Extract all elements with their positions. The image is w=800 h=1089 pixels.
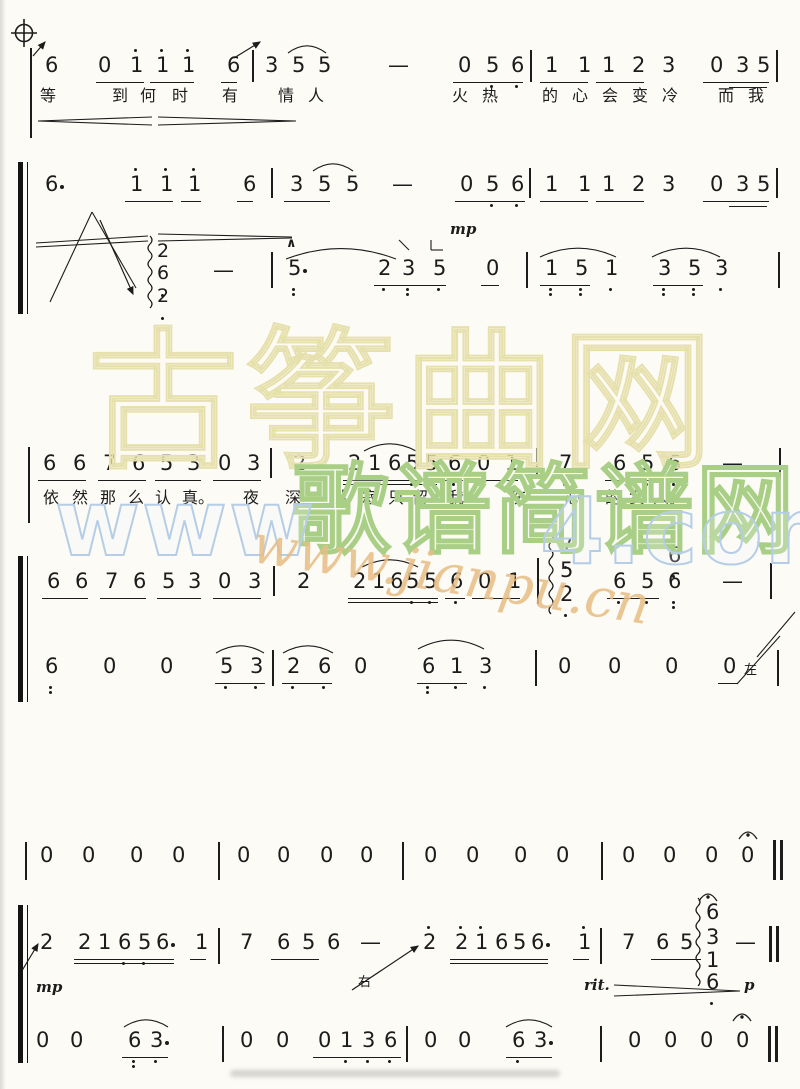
glissando-arrow: [33, 42, 45, 56]
note-glyph: 0: [276, 1030, 289, 1051]
slur-arc: [364, 444, 416, 451]
note-glyph: 1: [545, 55, 558, 76]
note-glyph: 0: [477, 453, 490, 474]
note-glyph: 0: [460, 174, 473, 195]
octave-dot-below: [254, 686, 257, 689]
octave-dot-below: [672, 601, 675, 604]
note-glyph: 3: [187, 453, 200, 474]
lyric-syllable: 时: [172, 88, 188, 104]
note-glyph: 6: [512, 1030, 525, 1051]
note-glyph: 5: [318, 55, 331, 76]
barline: [271, 168, 273, 198]
octave-dot-below: [406, 293, 409, 296]
note-glyph: 1: [188, 174, 201, 195]
note-glyph: 2: [297, 571, 310, 592]
barline: [218, 928, 220, 964]
barline: [273, 566, 275, 596]
octave-dot-below: [564, 614, 567, 617]
beam-line: [651, 959, 701, 960]
note-glyph: 5: [292, 55, 305, 76]
note-glyph: 6: [156, 932, 169, 953]
beam-line: [348, 602, 438, 603]
final-barline: [768, 1026, 771, 1062]
lyric-syllable: 热: [482, 88, 498, 104]
octave-dot-below: [672, 606, 675, 609]
note-glyph: 6: [157, 264, 169, 283]
octave-dot-below: [291, 686, 294, 689]
notation-line: [399, 240, 409, 250]
note-glyph: 0: [70, 1030, 83, 1051]
lyric-syllable: 依: [43, 490, 59, 506]
note-glyph: 5: [406, 571, 419, 592]
note-glyph: 6: [706, 972, 719, 993]
barline: [526, 252, 528, 288]
lyric-syllable: 冷: [662, 88, 678, 104]
beam-line: [506, 1057, 552, 1058]
barline: [28, 447, 30, 523]
slur-arc: [283, 646, 333, 653]
note-glyph: —: [213, 260, 234, 281]
dynamic-marking: p: [744, 978, 755, 993]
beam-line: [282, 683, 332, 684]
octave-dot-above: [192, 168, 195, 171]
beam-line: [38, 480, 86, 481]
final-barline: [776, 926, 779, 962]
note-glyph: 6: [118, 932, 131, 953]
barline: [601, 842, 603, 880]
lyric-syllable: 寂: [362, 490, 378, 506]
octave-dot-above: [479, 926, 482, 929]
lyric-syllable: 火: [452, 88, 468, 104]
note-glyph: 6: [422, 656, 435, 677]
note-glyph: 1: [602, 174, 615, 195]
octave-dot-below: [672, 483, 675, 486]
note-glyph: 1: [368, 453, 381, 474]
octave-dot-above: [582, 926, 585, 929]
octave-dot-below: [292, 288, 295, 291]
lyric-syllable: 我: [748, 88, 764, 104]
note-glyph: 1: [160, 174, 173, 195]
augmentation-dot: [303, 269, 307, 273]
beam-line: [122, 1057, 168, 1058]
note-glyph: 1: [602, 55, 615, 76]
note-glyph: 5: [680, 932, 693, 953]
notation-line: [38, 121, 152, 125]
final-barline: [769, 926, 772, 962]
note-glyph: 6: [656, 932, 669, 953]
note-glyph: 0: [558, 656, 571, 677]
note-glyph: 1: [372, 571, 385, 592]
note-glyph: 0: [514, 845, 527, 866]
note-glyph: 7: [103, 453, 116, 474]
octave-dot-below: [437, 288, 440, 291]
note-glyph: 5: [757, 174, 770, 195]
note-glyph: 5: [641, 571, 654, 592]
note-glyph: 2: [378, 258, 391, 279]
note-glyph: 0: [240, 1030, 253, 1051]
barline: [779, 448, 781, 478]
beam-line: [455, 201, 525, 202]
beam-line: [150, 82, 194, 83]
note-glyph: 6: [613, 453, 626, 474]
beam-line: [100, 598, 146, 599]
note-glyph: 1: [578, 55, 591, 76]
note-glyph: 1: [98, 932, 111, 953]
note-glyph: 1: [545, 258, 558, 279]
score-page: 601116355—0561112303561116355—0561112303…: [0, 0, 800, 1089]
beam-line: [443, 480, 463, 481]
beam-line: [213, 598, 261, 599]
barline: [529, 168, 531, 198]
octave-dot-below: [617, 483, 620, 486]
beam-line: [540, 82, 588, 83]
barline: [25, 842, 27, 880]
accent-mark: ∧: [286, 237, 297, 250]
lyric-syllable: 人。: [653, 490, 685, 506]
note-glyph: 6: [531, 932, 544, 953]
octave-dot-below: [645, 601, 648, 604]
beam-line: [42, 598, 88, 599]
lyric-syllable: 深: [285, 490, 301, 506]
note-glyph: 0: [130, 845, 143, 866]
fermata-dot: [706, 895, 709, 898]
lyric-syllable: 心: [565, 490, 581, 506]
beam-line: [573, 959, 589, 960]
note-glyph: 2: [423, 932, 436, 953]
notation-line: [36, 236, 148, 243]
beam-line: [343, 480, 437, 481]
note-glyph: 6: [327, 932, 340, 953]
note-glyph: 6: [613, 571, 626, 592]
note-glyph: 0: [458, 1030, 471, 1051]
note-glyph: 0: [741, 845, 754, 866]
beam-line: [215, 683, 265, 684]
beam-line: [374, 285, 446, 286]
augmentation-dot: [165, 1041, 169, 1045]
barline: [530, 50, 532, 82]
octave-dot-below: [549, 293, 552, 296]
beam-line: [74, 963, 174, 964]
barline: [600, 928, 602, 964]
note-glyph: 3: [662, 174, 675, 195]
octave-dot-above: [427, 926, 430, 929]
barline: [270, 448, 272, 478]
note-glyph: 0: [160, 656, 173, 677]
barline: [252, 50, 254, 82]
lyric-syllable: 而: [718, 88, 734, 104]
note-glyph: 0: [360, 845, 373, 866]
lyric-syllable: 心: [572, 88, 588, 104]
note-glyph: 3: [247, 453, 260, 474]
lyric-syllable: 伤: [510, 490, 526, 506]
notation-line: [614, 985, 740, 991]
octave-dot-below: [161, 317, 164, 320]
note-glyph: 0: [700, 1030, 713, 1051]
notation-line: [757, 612, 795, 657]
note-glyph: 0: [663, 845, 676, 866]
notation-line: [92, 212, 136, 288]
lyric-syllable: 到: [112, 88, 128, 104]
notation-line: [614, 991, 740, 996]
note-glyph: 5: [138, 932, 151, 953]
system-bracket: [18, 905, 28, 1063]
octave-dot-below: [154, 1060, 157, 1063]
note-glyph: 3: [250, 656, 263, 677]
lyric-syllable: 何: [140, 88, 156, 104]
beam-line: [155, 480, 201, 481]
note-glyph: 6: [384, 1030, 397, 1051]
octave-dot-above: [134, 49, 137, 52]
note-glyph: 1: [578, 174, 591, 195]
coda-icon: [16, 25, 33, 42]
note-glyph: 6: [45, 656, 58, 677]
lyric-syllable: 会: [602, 88, 618, 104]
note-glyph: —: [388, 55, 409, 76]
beam-line: [98, 480, 146, 481]
note-glyph: 1: [195, 932, 208, 953]
note-glyph: 6: [132, 453, 145, 474]
octave-dot-below: [483, 686, 486, 689]
note-glyph: 0: [36, 1030, 49, 1051]
octave-dot-below: [609, 288, 612, 291]
beam-line: [450, 963, 548, 964]
note-glyph: 3: [662, 55, 675, 76]
note-glyph: 0: [277, 845, 290, 866]
note-glyph: 7: [622, 932, 635, 953]
octave-dot-below: [692, 293, 695, 296]
octave-dot-below: [710, 1002, 713, 1005]
note-glyph: 0: [710, 55, 723, 76]
note-glyph: 2: [632, 55, 645, 76]
note-glyph: —: [392, 174, 413, 195]
note-glyph: 0: [466, 845, 479, 866]
barline: [272, 650, 274, 686]
note-glyph: —: [360, 932, 381, 953]
barline: [218, 842, 220, 880]
octave-dot-below: [406, 288, 409, 291]
lyric-syllable: 人: [308, 88, 324, 104]
octave-dot-below: [344, 1060, 347, 1063]
note-glyph: 6: [511, 55, 524, 76]
beam-line: [453, 82, 523, 83]
note-glyph: 0: [486, 258, 499, 279]
notation-line: [158, 238, 292, 241]
note-glyph: 1: [706, 950, 719, 971]
note-glyph: 5: [160, 453, 173, 474]
note-glyph: 0: [218, 453, 231, 474]
note-glyph: 2: [455, 932, 468, 953]
note-glyph: 0: [710, 174, 723, 195]
slur-arc: [124, 1020, 168, 1027]
note-glyph: 5: [288, 258, 301, 279]
note-glyph: 0: [98, 55, 111, 76]
note-glyph: 0: [458, 55, 471, 76]
beam-line: [74, 959, 174, 960]
note-glyph: 1: [130, 174, 143, 195]
note-glyph: 0: [424, 1030, 437, 1051]
note-glyph: 3: [736, 55, 749, 76]
beam-line: [284, 201, 330, 202]
barline: [30, 48, 32, 138]
octave-dot-below: [132, 1065, 135, 1068]
note-glyph: —: [722, 571, 743, 592]
octave-dot-below: [454, 686, 457, 689]
note-glyph: 0: [424, 845, 437, 866]
lyric-syllable: 认: [155, 490, 171, 506]
note-glyph: 7: [559, 453, 572, 474]
note-glyph: 3: [290, 174, 303, 195]
note-glyph: 6: [133, 571, 146, 592]
octave-dot-below: [454, 601, 457, 604]
note-glyph: 1: [475, 932, 488, 953]
note-glyph: 3: [479, 656, 492, 677]
octave-dot-below: [49, 686, 52, 689]
octave-dot-below: [452, 483, 455, 486]
note-glyph: 5: [560, 560, 573, 581]
note-glyph: 5: [425, 453, 438, 474]
note-glyph: 0: [628, 1030, 641, 1051]
beam-line: [450, 959, 548, 960]
note-glyph: 3: [265, 55, 278, 76]
dynamic-marking: mp: [36, 980, 62, 995]
lyric-syllable: 夜: [243, 490, 259, 506]
beam-line: [213, 480, 261, 481]
octave-dot-above: [160, 49, 163, 52]
note-glyph: 0: [320, 845, 333, 866]
note-glyph: 6: [450, 571, 463, 592]
note-glyph: 3: [534, 1030, 547, 1051]
beam-line: [157, 598, 201, 599]
note-glyph: 6: [388, 453, 401, 474]
note-glyph: 0: [354, 656, 367, 677]
note-glyph: —: [735, 932, 756, 953]
octave-dot-below: [719, 288, 722, 291]
note-glyph: 0: [664, 1030, 677, 1051]
beam-line: [445, 598, 465, 599]
note-glyph: 3: [736, 174, 749, 195]
note-glyph: 0: [218, 571, 231, 592]
barline: [271, 252, 273, 288]
note-glyph: 5: [575, 258, 588, 279]
beam-line: [472, 598, 520, 599]
beam-line: [221, 82, 237, 83]
system-bracket: [18, 162, 28, 314]
hand-technique-label: 左: [744, 664, 757, 677]
slur-arc: [506, 1020, 552, 1027]
note-glyph: 6: [706, 902, 719, 923]
octave-dot-below: [662, 288, 665, 291]
note-glyph: 0: [172, 845, 185, 866]
arpeggio-wavy-line: [696, 898, 700, 986]
note-glyph: 5: [220, 656, 233, 677]
fermata-icon: [739, 832, 757, 839]
lyric-syllable: 有: [222, 88, 238, 104]
note-glyph: 5: [318, 174, 331, 195]
octave-dot-below: [662, 293, 665, 296]
note-glyph: 5: [433, 258, 446, 279]
note-glyph: 6: [448, 453, 461, 474]
note-glyph: 2: [287, 656, 300, 677]
final-barline: [773, 840, 776, 880]
octave-dot-below: [382, 288, 385, 291]
octave-dot-below: [426, 686, 429, 689]
watermark-text: 歌谱简谱网: [292, 462, 797, 560]
note-glyph: 0: [622, 845, 635, 866]
beam-line: [703, 82, 769, 83]
note-glyph: 1: [450, 656, 463, 677]
note-glyph: 6: [495, 932, 508, 953]
barline: [406, 1026, 408, 1062]
notation-line: [158, 234, 292, 237]
lyric-syllable: 真。: [182, 490, 214, 506]
beam-line: [605, 480, 655, 481]
dynamic-marking: mp: [450, 222, 476, 237]
note-glyph: 0: [736, 1030, 749, 1051]
barline: [537, 558, 539, 604]
beam-line: [313, 1057, 401, 1058]
note-glyph: 6: [227, 55, 240, 76]
system-bracket: [18, 556, 28, 702]
octave-dot-below: [515, 204, 518, 207]
note-glyph: 3: [188, 571, 201, 592]
note-glyph: 5: [486, 55, 499, 76]
lyric-syllable: 那: [100, 490, 116, 506]
note-glyph: 0: [608, 656, 621, 677]
note-glyph: 0: [237, 845, 250, 866]
note-glyph: 0: [82, 845, 95, 866]
beam-line: [96, 82, 144, 83]
lyric-syllable: 只: [388, 490, 404, 506]
octave-dot-below: [388, 1060, 391, 1063]
note-glyph: 5: [346, 174, 359, 195]
fermata-icon: [733, 1014, 751, 1021]
barline: [535, 650, 537, 686]
note-glyph: —: [722, 453, 743, 474]
note-glyph: 2: [348, 453, 361, 474]
beam-line: [540, 285, 590, 286]
barline: [776, 50, 778, 82]
slur-arc: [362, 560, 418, 567]
beam-line: [596, 201, 644, 202]
note-glyph: 7: [560, 536, 573, 557]
beam-line: [125, 201, 173, 202]
note-glyph: 6: [73, 453, 86, 474]
note-glyph: 5: [302, 932, 315, 953]
octave-dot-above: [186, 49, 189, 52]
beam-line: [718, 683, 738, 684]
note-glyph: 6: [45, 174, 58, 195]
octave-dot-below: [563, 483, 566, 486]
octave-dot-below: [516, 1060, 519, 1063]
note-glyph: 5: [641, 453, 654, 474]
lyric-syllable: 么: [128, 490, 144, 506]
beam-line: [729, 206, 767, 207]
octave-dot-below: [366, 1060, 369, 1063]
note-glyph: 1: [130, 55, 143, 76]
lyric-syllable: 变: [632, 88, 648, 104]
note-glyph: 0: [103, 656, 116, 677]
note-glyph: 1: [605, 258, 618, 279]
arpeggio-wavy-line: [148, 236, 152, 308]
note-glyph: 2: [560, 584, 573, 605]
note-glyph: 6: [75, 571, 88, 592]
notation-line: [50, 212, 92, 302]
note-glyph: 3: [150, 1030, 163, 1051]
note-glyph: 1: [545, 174, 558, 195]
note-glyph: 5: [688, 258, 701, 279]
octave-dot-below: [49, 691, 52, 694]
print-smudge: [230, 1070, 560, 1077]
